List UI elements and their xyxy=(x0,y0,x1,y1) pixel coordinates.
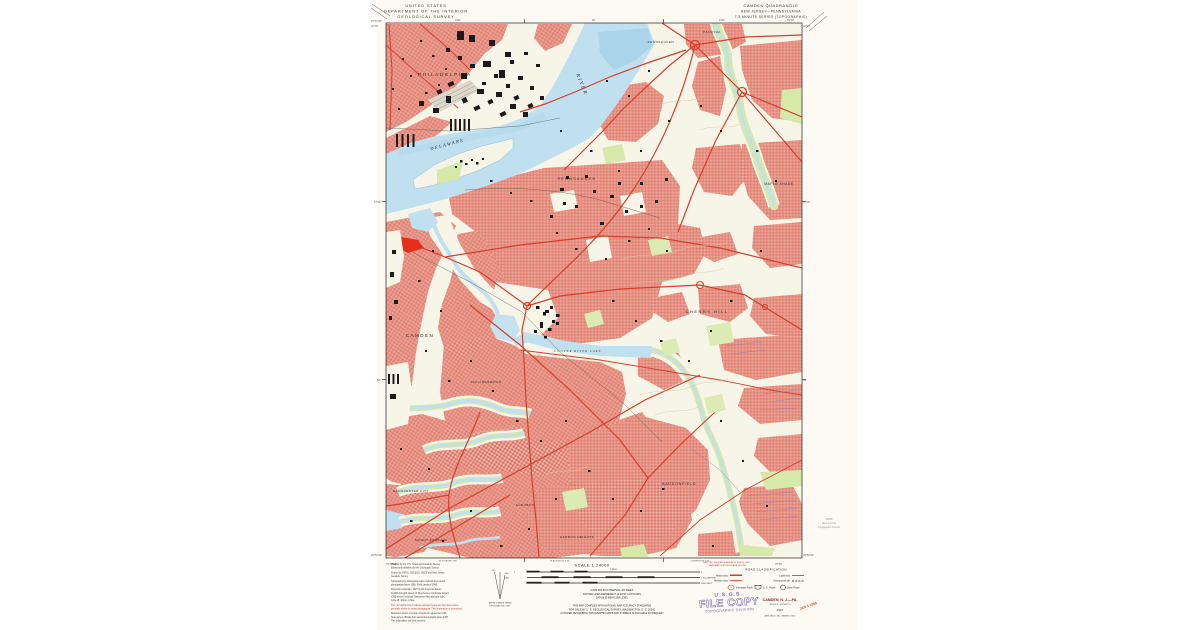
svg-text:Unimproved dirt: Unimproved dirt xyxy=(773,580,790,583)
svg-text:BLACKWOOD 5 MI.: BLACKWOOD 5 MI. xyxy=(550,560,570,563)
svg-text:N4052.5—W7500/7.5: N4052.5—W7500/7.5 xyxy=(769,604,791,606)
svg-text:CHERRY HILL: CHERRY HILL xyxy=(686,309,729,314)
svg-text:CAMDEN QUADRANGLE: CAMDEN QUADRANGLE xyxy=(744,3,799,8)
svg-text:GN: GN xyxy=(491,570,495,572)
svg-text:Fine red dashed lines indicate: Fine red dashed lines indicate selected … xyxy=(391,604,459,607)
svg-text:ROAD CLASSIFICATION: ROAD CLASSIFICATION xyxy=(745,568,787,572)
svg-text:zone 18, shown in blue: zone 18, shown in blue xyxy=(391,600,415,602)
svg-text:COOPER RIVER LAKE: COOPER RIVER LAKE xyxy=(554,350,601,353)
svg-text:05': 05' xyxy=(592,18,596,22)
svg-text:WOODBURY 4 MI.: WOODBURY 4 MI. xyxy=(439,561,458,563)
svg-text:AUDUBON: AUDUBON xyxy=(516,503,535,507)
svg-text:75°07'30": 75°07'30" xyxy=(371,19,382,23)
svg-text:LANDMARK BUILDINGS ARE SHOWN: LANDMARK BUILDINGS ARE SHOWN xyxy=(708,564,747,567)
svg-text:55': 55' xyxy=(377,378,381,382)
svg-text:1 MILE: 1 MILE xyxy=(610,569,617,571)
svg-text:SCALE 1:24000: SCALE 1:24000 xyxy=(574,563,609,568)
svg-text:UNITED STATES: UNITED STATES xyxy=(405,3,446,8)
svg-text:75°00': 75°00' xyxy=(787,18,795,22)
svg-text:CAMDEN, N. J.—PA.: CAMDEN, N. J.—PA. xyxy=(763,598,798,602)
svg-text:2'30": 2'30" xyxy=(455,18,461,22)
svg-text:Medium-duty: Medium-duty xyxy=(714,580,729,583)
svg-text:photographs taken 1965. Field: photographs taken 1965. Field checked 19… xyxy=(391,583,438,586)
svg-text:PALMYRA: PALMYRA xyxy=(703,30,721,34)
svg-text:CAMDEN: CAMDEN xyxy=(406,333,435,338)
svg-text:1000-meter Universal Transvers: 1000-meter Universal Transverse Mercator… xyxy=(391,595,445,598)
svg-text:Light-duty: Light-duty xyxy=(780,575,791,578)
svg-text:generally visible on aerial ph: generally visible on aerial photographs.… xyxy=(391,607,463,610)
svg-text:1967: 1967 xyxy=(777,608,784,612)
svg-text:State Route: State Route xyxy=(787,587,800,590)
svg-text:7.5 MINUTE SERIES (TOPOGRAPHIC: 7.5 MINUTE SERIES (TOPOGRAPHIC) xyxy=(735,15,808,19)
svg-text:55': 55' xyxy=(803,378,807,382)
svg-text:39°52'30": 39°52'30" xyxy=(371,553,382,557)
svg-text:Revisions shown in purple comp: Revisions shown in purple compiled in ag… xyxy=(391,612,447,615)
svg-text:Polyconic projection. 1927 No: Polyconic projection. 1927 North America… xyxy=(391,588,441,591)
svg-text:APPROXIMATE MEAN: APPROXIMATE MEAN xyxy=(489,602,512,605)
svg-text:PENNSAUKEN: PENNSAUKEN xyxy=(558,177,597,181)
svg-text:39°52'30": 39°52'30" xyxy=(803,553,814,557)
svg-text:DATUM IS MEAN SEA LEVEL: DATUM IS MEAN SEA LEVEL xyxy=(596,597,629,600)
svg-text:Historical File: Historical File xyxy=(822,522,837,525)
svg-text:Topographic Division: Topographic Division xyxy=(818,526,841,529)
svg-text:FOR SALE BY U. S. GEOLOGICAL S: FOR SALE BY U. S. GEOLOGICAL SURVEY, WAS… xyxy=(569,607,656,611)
svg-text:NEW JERSEY—PENNSYLVANIA: NEW JERSEY—PENNSYLVANIA xyxy=(741,10,801,14)
svg-text:MN: MN xyxy=(505,573,509,575)
svg-text:35938: 35938 xyxy=(826,518,833,521)
svg-text:U. S. Route: U. S. Route xyxy=(763,587,776,590)
svg-text:40°00': 40°00' xyxy=(371,24,379,28)
svg-text:57'30": 57'30" xyxy=(803,200,810,204)
svg-text:PENNSAUKEN: PENNSAUKEN xyxy=(648,40,675,44)
svg-text:Heavy-duty: Heavy-duty xyxy=(716,575,729,578)
svg-text:COLLINGSWOOD: COLLINGSWOOD xyxy=(471,380,502,384)
svg-text:40°00': 40°00' xyxy=(803,24,811,28)
svg-text:7000 FEET: 7000 FEET xyxy=(701,583,713,585)
svg-text:New Jersey officials from aeri: New Jersey officials from aerial photogr… xyxy=(391,616,449,619)
svg-text:HADDONFIELD: HADDONFIELD xyxy=(662,482,697,486)
svg-text:Mapped by the U.S. Coast and G: Mapped by the U.S. Coast and Geodetic Su… xyxy=(391,563,441,566)
svg-text:Control by USGS, USC&GS, USCE: Control by USGS, USC&GS, USCE and New Je… xyxy=(391,571,445,574)
svg-text:MOUNT EPHRAIM: MOUNT EPHRAIM xyxy=(415,538,447,542)
svg-text:RED TINT INDICATES AREAS IN WH: RED TINT INDICATES AREAS IN WHICH ONLY xyxy=(703,561,751,564)
svg-text:1000: 1000 xyxy=(504,578,510,580)
svg-text:Interstate Route: Interstate Route xyxy=(736,587,754,590)
svg-text:10,000-foot grid based on New: 10,000-foot grid based on New Jersey coo… xyxy=(391,592,449,595)
svg-text:GLOUCESTER CITY: GLOUCESTER CITY xyxy=(393,489,429,493)
svg-text:This information not field che: This information not field checked xyxy=(391,619,426,622)
svg-text:CONTOUR INTERVAL 20 FEET: CONTOUR INTERVAL 20 FEET xyxy=(591,588,634,592)
svg-text:MAPLE SHADE: MAPLE SHADE xyxy=(764,182,793,186)
svg-text:DECLINATION, 1967: DECLINATION, 1967 xyxy=(490,605,511,608)
svg-text:AMS 5854 I SE—SERIES V822: AMS 5854 I SE—SERIES V822 xyxy=(765,615,797,618)
svg-text:PHILADELPHIA: PHILADELPHIA xyxy=(418,72,472,77)
svg-text:75°00': 75°00' xyxy=(775,562,783,566)
svg-text:Topography by photogrammetric: Topography by photogrammetric methods fr… xyxy=(391,580,445,583)
svg-text:THIS MAP COMPLIES WITH NATIONA: THIS MAP COMPLIES WITH NATIONAL MAP ACCU… xyxy=(573,605,652,608)
svg-text:A FOLDER DESCRIBING TOPOGRAPHI: A FOLDER DESCRIBING TOPOGRAPHIC MAPS AND… xyxy=(560,612,664,615)
svg-text:DEPARTMENT OF THE INTERIOR: DEPARTMENT OF THE INTERIOR xyxy=(384,9,468,14)
svg-text:57'30": 57'30" xyxy=(374,200,381,204)
svg-text:2'30": 2'30" xyxy=(719,18,725,22)
svg-text:GEOLOGICAL SURVEY: GEOLOGICAL SURVEY xyxy=(397,14,454,19)
svg-text:Geodetic Survey: Geodetic Survey xyxy=(391,575,409,578)
svg-text:Edited and published by the Ge: Edited and published by the Geological S… xyxy=(391,567,439,570)
svg-text:HADDON HEIGHTS: HADDON HEIGHTS xyxy=(560,535,594,539)
